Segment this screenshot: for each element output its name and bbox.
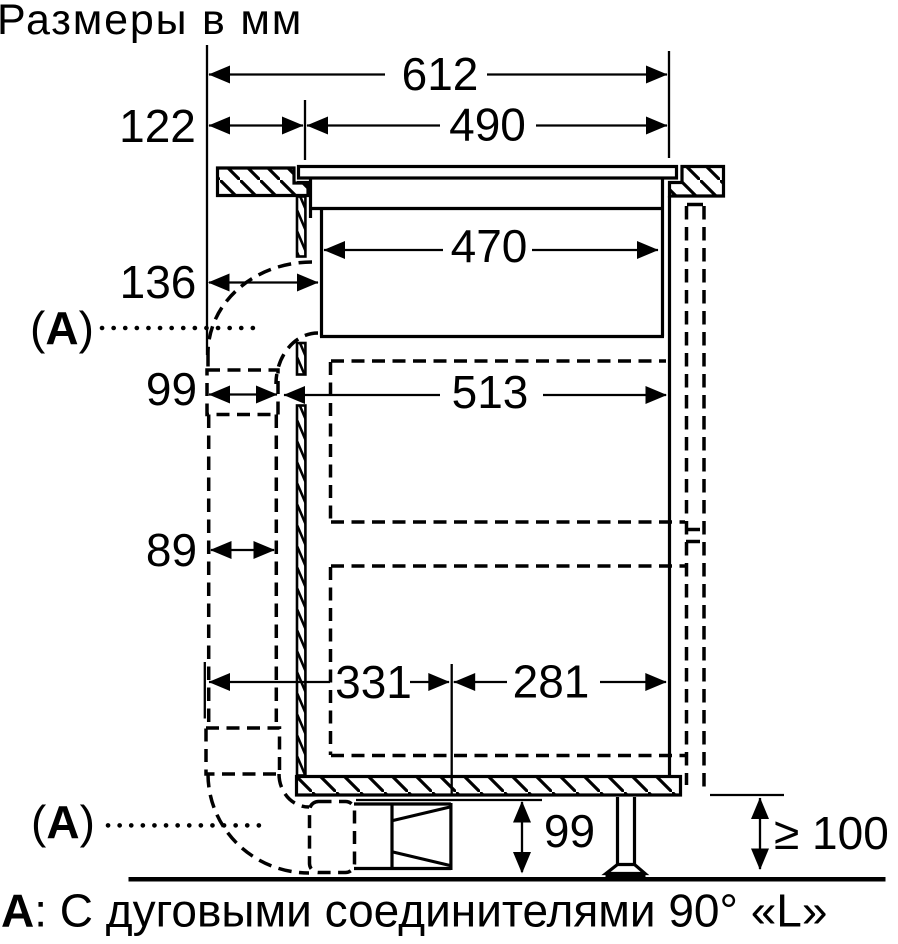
- svg-text:470: 470: [451, 220, 528, 272]
- svg-text:≥ 100: ≥ 100: [774, 807, 889, 859]
- svg-text:612: 612: [402, 48, 479, 100]
- svg-text:А: С дуговыми соединителями 90: А: С дуговыми соединителями 90° «L»: [1, 885, 827, 937]
- svg-text:136: 136: [120, 256, 197, 308]
- svg-text:99: 99: [146, 363, 197, 415]
- svg-text:513: 513: [452, 366, 529, 418]
- svg-text:89: 89: [146, 524, 197, 576]
- svg-text:331: 331: [335, 656, 412, 708]
- svg-text:(A): (A): [31, 796, 95, 848]
- svg-text:490: 490: [449, 99, 526, 151]
- svg-text:99: 99: [544, 805, 595, 857]
- svg-text:122: 122: [119, 100, 196, 152]
- svg-text:(A): (A): [30, 302, 94, 354]
- svg-text:Размеры в мм: Размеры в мм: [0, 0, 303, 44]
- svg-text:281: 281: [513, 656, 590, 708]
